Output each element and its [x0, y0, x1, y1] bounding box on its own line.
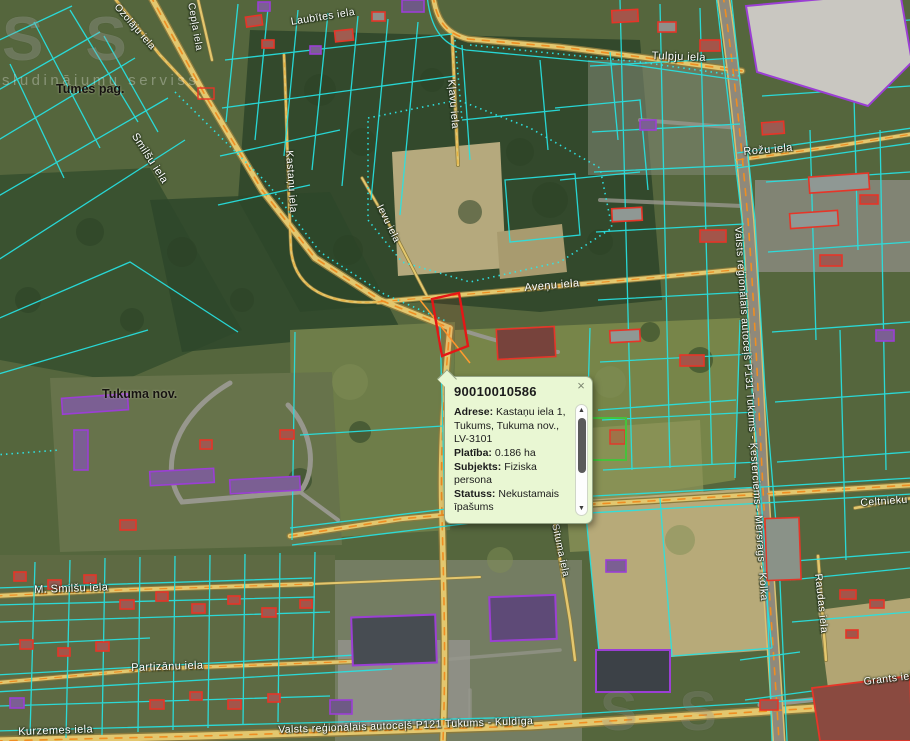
scroll-down-icon[interactable]: ▼ — [576, 504, 587, 514]
area-label: Tumes pag. — [56, 82, 125, 96]
field-label: Subjekts: — [454, 461, 501, 473]
popup-scrollbar[interactable]: ▲ ▼ — [575, 404, 588, 516]
scrollbar-thumb[interactable] — [578, 418, 586, 473]
parcel-info-popup: 90010010586 × Adrese: Kastaņu iela 1, Tu… — [444, 376, 593, 524]
area-label: Tukuma nov. — [102, 387, 177, 401]
cadastre-number: 90010010586 — [454, 384, 571, 399]
field-value: 0.186 ha — [495, 447, 536, 459]
field-label: Adrese: — [454, 406, 493, 418]
street-label: Tulpju iela — [652, 50, 707, 64]
street-label: M. Smilšu iela — [34, 581, 108, 596]
field-label: Statuss: — [454, 488, 495, 500]
cadastre-map-view: SS sludinājumu serviss SS sludinājumu se… — [0, 0, 910, 741]
parcel-details: Adrese: Kastaņu iela 1, Tukums, Tukuma n… — [454, 406, 571, 515]
close-icon[interactable]: × — [575, 380, 587, 392]
street-label: Partizānu iela — [131, 659, 204, 674]
field-label: Platība: — [454, 447, 492, 459]
scroll-up-icon[interactable]: ▲ — [576, 406, 587, 416]
